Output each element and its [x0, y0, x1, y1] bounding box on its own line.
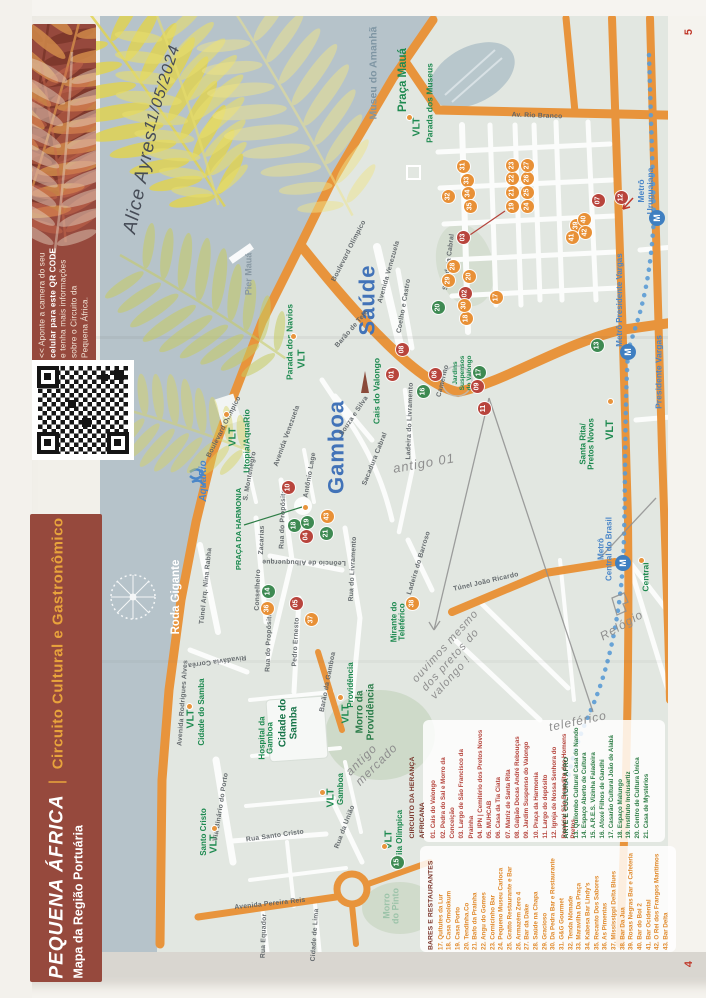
legend-item: 31. G&G Gourmet: [559, 848, 568, 950]
roda-gigante-icon: [111, 575, 155, 619]
title-circuito: Circuito Cultural e Gastronômico: [50, 517, 67, 769]
legend-item: 17. Casarão Cultural João de Alabá: [608, 726, 617, 839]
legend-item: 21. Bafo da Prainha: [472, 848, 481, 950]
map-marker-38: 38: [406, 597, 419, 610]
district-gamboa: Gamboa: [324, 400, 347, 494]
top-margin: [0, 0, 706, 16]
map-marker-41: 41: [566, 231, 579, 244]
morro-do-pinto-label: Morrodo Pinto: [383, 888, 402, 924]
legend-section-bares: BARES E RESTAURANTES17. Quitutes da Lur1…: [427, 848, 672, 950]
vlt-stop-dot: [608, 399, 613, 404]
legend-item: 06. Casa da Tia Ciata: [494, 726, 503, 839]
legend-item: 39. Rosas Negras Bar e Cafeteria: [628, 848, 637, 950]
bottom-margin: [0, 952, 706, 998]
map-marker-21: 21: [320, 527, 333, 540]
map-marker-20: 20: [463, 270, 476, 283]
map-marker-37: 37: [305, 613, 318, 626]
legend-item: 09. Jardim Suspenso do Valongo: [522, 726, 531, 839]
legend-section-circuito: CIRCUITO DA HERANÇA AFRICANA01. Cais do …: [408, 726, 578, 839]
vlt-stop-dot: [291, 334, 296, 339]
museu-do-amanha: Museu do Amanhã: [368, 27, 379, 120]
map-marker-27: 27: [521, 159, 534, 172]
map-marker-29: 29: [442, 274, 455, 287]
legend-item: 30. Da Pedra Bar e Restaurante: [550, 848, 559, 950]
legend-item: 11. Largo do depósito: [541, 726, 550, 839]
santa-rita-label: Santa Rita/Pretos Novos: [580, 418, 597, 470]
map-marker-35: 35: [464, 200, 477, 213]
legend-header-arte: ARTE E CULTURA AFRO: [562, 726, 572, 839]
qr-instruction-banner: << Aponte a camera do seu celular para e…: [32, 24, 96, 362]
metro-station-icon: M: [615, 555, 631, 571]
legend-item: 03. Largo de São Francisco da Prainha: [457, 726, 476, 839]
qr-code-emphasis: celular para este QR CODE: [48, 248, 57, 358]
roundabout: [337, 874, 367, 904]
vlt-stop-dot: [212, 826, 217, 831]
legend-item: 43. Bar Delta: [663, 848, 672, 950]
legend-item: 34. Kabesa Bar Lindy's: [585, 848, 594, 950]
qr-finder-tl: [37, 366, 59, 388]
legend-item: 16. Afoxé Filhos de Gandhi: [599, 726, 608, 839]
title-banner: PEQUENA ÁFRICA | Circuito Cultural e Gas…: [30, 514, 102, 982]
legend-item: 38. Bar Da Jua: [619, 848, 628, 950]
metro-station-icon: M: [620, 344, 636, 360]
vlt-stop-dot: [224, 412, 229, 417]
vlt-museus: VLT: [411, 117, 422, 136]
legend-item: 18. Casa Omolokum: [446, 848, 455, 950]
map-marker-06: 06: [429, 368, 442, 381]
praca-maua: Praça Mauá: [397, 48, 409, 112]
map-subtitle: Mapa da Região Portuária: [72, 517, 86, 978]
vlt-providencia-label: Providência: [347, 662, 355, 707]
metro-central-label: MetrôCentral do Brasil: [598, 517, 615, 581]
legend-item: 37. Mississippi Delta Blues: [611, 848, 620, 950]
legend-item: 08. Galpão Docas André Rebouças: [513, 726, 522, 839]
legend-item: 19. Instituto Inclusartiz: [626, 726, 635, 839]
vlt-gamboa-label: Gamboa: [337, 773, 345, 805]
scanned-map-page: << Aponte a camera do seu celular para e…: [0, 0, 706, 998]
map-marker-23: 23: [506, 159, 519, 172]
legend-item: 05. MUHCAB: [485, 726, 494, 839]
legend-item: 15. A.R.E.S. Vizinha Faladeira: [590, 726, 599, 839]
metro-uruguaiana-label: MetrôUruguaiana: [637, 168, 655, 215]
legend-item: 10. Praça da Harmonia: [532, 726, 541, 839]
praca-da-harmonia-label: PRAÇA DA HARMONIA: [235, 488, 243, 570]
legend-header-bares: BARES E RESTAURANTES: [427, 848, 437, 950]
map-marker-32: 32: [442, 190, 455, 203]
map-marker-17: 17: [490, 291, 503, 304]
map-marker-13: 13: [591, 339, 604, 352]
legend-item: 04. IPN | Cemitério dos Pretos Novos: [476, 726, 485, 839]
legend-item: 07. Matriz de Santa Rita: [504, 726, 513, 839]
map-marker-26: 26: [521, 172, 534, 185]
legend-item: 42. O Rei dos Frangos Marítimos: [654, 848, 663, 950]
map-marker-36: 36: [261, 602, 274, 615]
legend-item: 14. Espaço Aberto de Cultura: [582, 726, 591, 839]
map-marker-42: 42: [579, 226, 592, 239]
legend-item: 29. Gracioso: [541, 848, 550, 950]
map-marker-40: 40: [578, 213, 591, 226]
legend-item: 23. Cornicinho Bar: [489, 848, 498, 950]
legend-item: 41. Bar Ocidental: [645, 848, 654, 950]
map-marker-16: 16: [417, 385, 430, 398]
vlt-stop-dot: [407, 115, 412, 120]
legend-item: 18. Espaço Malungo: [617, 726, 626, 839]
map-marker-43: 43: [321, 510, 334, 523]
vlt-stop-dot: [639, 558, 644, 563]
map-marker-08: 08: [396, 343, 409, 356]
legend-item: 36. As Pimentas: [602, 848, 611, 950]
legend-item: 33. Maravilha Da Praça: [576, 848, 585, 950]
legend-item: 26. Armazém Zero 4: [515, 848, 524, 950]
map-marker-21: 21: [506, 186, 519, 199]
map-marker-18: 18: [460, 312, 473, 325]
cais-do-valongo-label: Cais do Valongo: [373, 358, 382, 424]
vlt-stop-dot: [320, 790, 325, 795]
map-marker-30: 30: [458, 299, 471, 312]
map-marker-09: 09: [471, 380, 484, 393]
map-title: PEQUENA ÁFRICA | Circuito Cultural e Gas…: [47, 517, 69, 978]
left-margin: [0, 0, 32, 998]
legend-item: 32. Tenda Nômade: [567, 848, 576, 950]
vlt-central-label: Central: [642, 562, 651, 591]
street-label: Zacarias: [258, 525, 266, 554]
legend-section-arte: ARTE E CULTURA AFRO13. Quilombo Cultural…: [562, 726, 652, 839]
legend-item: 01. Cais do Valongo: [429, 726, 438, 839]
map-marker-07: 07: [592, 194, 605, 207]
map-marker-12: 12: [615, 191, 628, 204]
vlt-santa-rita: VLT: [605, 420, 617, 440]
legend-header-circuito: CIRCUITO DA HERANÇA AFRICANA: [408, 726, 428, 839]
presidente-vargas-street: Presidente Vargas: [655, 335, 664, 409]
metro-presidente-vargas-label: Metrô Presidente Vargas: [616, 253, 624, 346]
legend-item: 22. Angu do Gomes: [481, 848, 490, 950]
qr-finder-br: [107, 432, 129, 454]
vlt-vila-olimpica-label: Vila Olímpica: [396, 810, 404, 860]
metro-station-icon: M: [649, 210, 665, 226]
legend-item: 17. Quitutes da Lur: [437, 848, 446, 950]
legend-item: 20. Centro de Cultura Única: [634, 726, 643, 839]
vlt-navios: VLT: [296, 349, 307, 368]
hospital-gamboa-label: Hospital daGamboa: [259, 716, 276, 759]
legend-item: 28. Saúde na Chapa: [533, 848, 542, 950]
page-number-top: 5: [683, 29, 695, 35]
legend-item: 27. Bar da Dake: [524, 848, 533, 950]
vlt-stop-dot: [338, 695, 343, 700]
legend-item: 19. Casa Porto: [455, 848, 464, 950]
map-marker-10: 10: [282, 481, 295, 494]
map-marker-19: 19: [301, 516, 314, 529]
legend-item: 21. Casa de Mystérios: [643, 726, 652, 839]
map-marker-17: 17: [473, 366, 486, 379]
legend-item: 25. Gratto Restaurante e Bar: [507, 848, 516, 950]
map-marker-24: 24: [521, 200, 534, 213]
vlt-parada-navios-label: Parada dos Navios: [286, 304, 295, 380]
map-marker-28: 28: [447, 260, 460, 273]
map-marker-05: 05: [290, 597, 303, 610]
legend-item: 20. Tendinha.Co: [463, 848, 472, 950]
title-separator: |: [47, 775, 68, 788]
vlt-parada-museus-label: Parada dos Museus: [426, 63, 435, 143]
map-marker-14: 14: [262, 585, 275, 598]
map-marker-34: 34: [462, 187, 475, 200]
legend-item: 40. Bar do Boi 2: [637, 848, 646, 950]
map-marker-22: 22: [506, 172, 519, 185]
vlt-stop-dot: [382, 844, 387, 849]
map-marker-19: 19: [506, 200, 519, 213]
qr-instruction-text: << Aponte a camera do seu celular para e…: [37, 226, 90, 358]
street-label: Leôncio de Albuquerque: [262, 558, 346, 567]
morro-providencia-label: Morro daProvidência: [356, 684, 377, 741]
qr-finder-bl: [37, 432, 59, 454]
title-pequena-africa: PEQUENA ÁFRICA: [47, 794, 68, 978]
page-number-bottom: 4: [683, 961, 695, 967]
map-marker-33: 33: [461, 174, 474, 187]
pier-maua: Pier Mauá: [244, 253, 253, 296]
map-marker-25: 25: [521, 186, 534, 199]
vlt-utopia: VLT: [227, 427, 238, 446]
legend-item: 35. Recanto Dos Sabores: [593, 848, 602, 950]
cidade-do-samba-area-label: Cidade doSamba: [279, 699, 300, 747]
map-marker-20: 20: [432, 301, 445, 314]
legend-item: 24. Pequeno Museu Carioca: [498, 848, 507, 950]
map-marker-15: 15: [391, 856, 404, 869]
mirante-teleferico-label: Mirante doTeleférico: [391, 602, 408, 642]
roda-gigante-label: Roda Gigante: [170, 560, 182, 635]
map-marker-04: 04: [300, 530, 313, 543]
qr-code: [32, 360, 134, 460]
map-marker-31: 31: [457, 160, 470, 173]
map-marker-18: 18: [288, 519, 301, 532]
map-marker-03: 03: [457, 231, 470, 244]
vlt-cidade-samba: VLT: [185, 709, 196, 728]
vlt-stop-dot: [187, 704, 192, 709]
legend-item: 02. Pedra do Sal e Morro da Conceição: [439, 726, 458, 839]
aquario-logo-label: AquaRio: [199, 460, 210, 501]
vlt-cidade-samba-label: Cidade do Samba: [198, 678, 206, 745]
vlt-stop-dot: [303, 505, 308, 510]
legend-item: 13. Quilombo Cultural Casa do Nando: [573, 726, 582, 839]
map-marker-11: 11: [478, 402, 491, 415]
map-marker-01: 01: [386, 368, 399, 381]
map-marker-02: 02: [459, 287, 472, 300]
